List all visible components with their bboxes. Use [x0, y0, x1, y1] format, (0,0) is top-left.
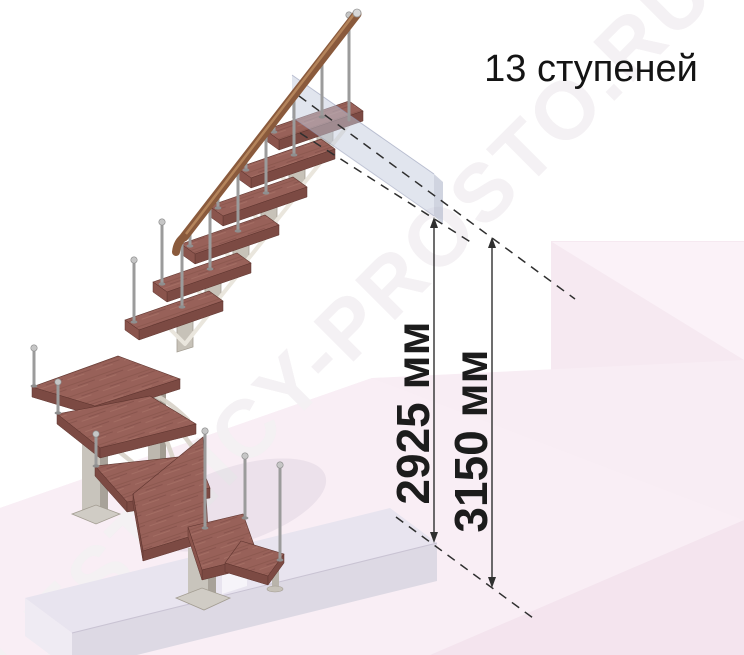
diagram-title: 13 ступеней — [484, 48, 698, 90]
rail-end-cap — [353, 9, 361, 17]
staircase-diagram: LESTNICY-PROSTO.RU LESTNICY-PROSTO.RU — [0, 0, 744, 655]
dimension-label-3150: 3150 мм — [445, 349, 497, 532]
staircase-illustration: LESTNICY-PROSTO.RU LESTNICY-PROSTO.RU — [0, 0, 744, 655]
dimension-label-2925: 2925 мм — [387, 321, 439, 504]
